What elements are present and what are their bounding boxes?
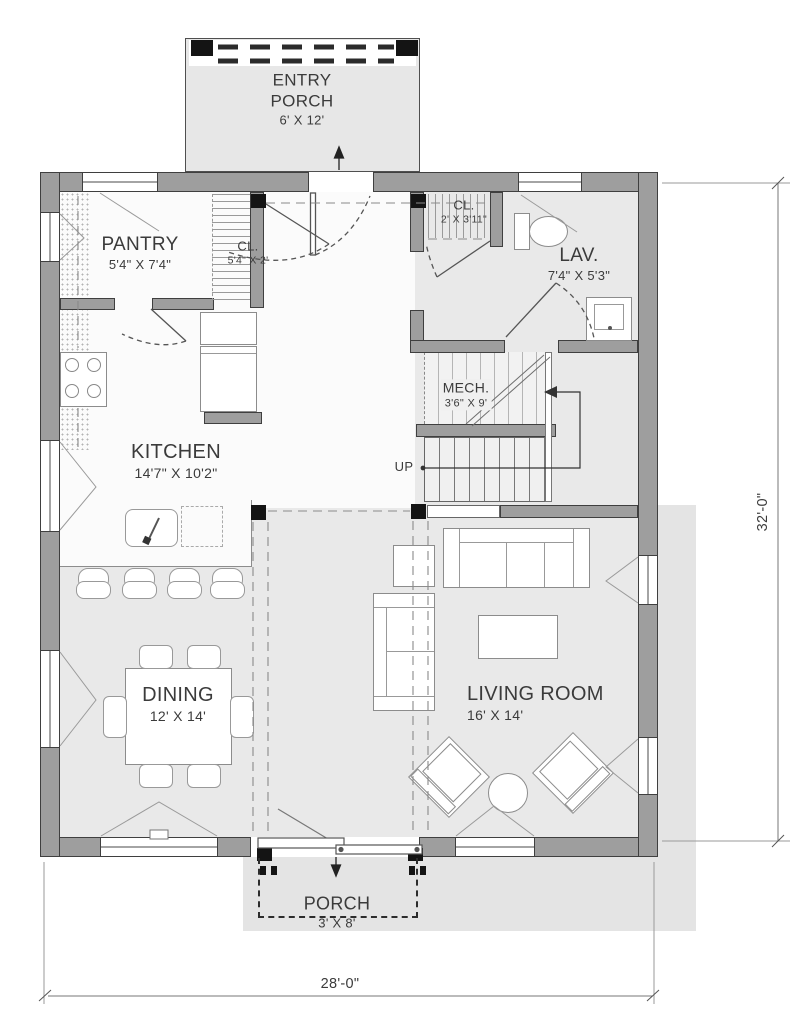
- window-dining-south: [100, 837, 218, 857]
- room-label-closet-pantry: CL. 5'4" X 2': [228, 238, 269, 267]
- room-label-porch: PORCH 3' X 8': [304, 893, 371, 932]
- column: [411, 194, 426, 208]
- room-label-kitchen: KITCHEN 14'7" X 10'2": [131, 440, 221, 483]
- wall-pantry-kitchen-a: [60, 298, 115, 310]
- dining-chair: [230, 696, 254, 738]
- room-label-mech: MECH. 3'6" X 9': [441, 379, 492, 410]
- window-living-south: [455, 837, 535, 857]
- room-label-living: LIVING ROOM 16' X 14': [467, 682, 604, 725]
- room-label-dining: DINING 12' X 14': [142, 683, 214, 726]
- column: [251, 194, 266, 208]
- dishwasher: [181, 506, 223, 547]
- wall-lav-south-a: [410, 340, 505, 353]
- burner: [87, 384, 101, 398]
- porch-post: [420, 866, 426, 875]
- stove: [60, 352, 107, 407]
- dimension-width-label: 28'-0": [321, 975, 360, 993]
- bar-stool: [210, 568, 244, 602]
- burner: [65, 384, 79, 398]
- kitchen-counter: [60, 192, 90, 450]
- floor-plan: ENTRY PORCH 6' X 12' PANTRY 5'4" X 7'4" …: [0, 0, 812, 1024]
- dining-chair: [139, 645, 173, 669]
- wall-living-north: [500, 505, 638, 518]
- dining-chair: [103, 696, 127, 738]
- room-label-lav: LAV. 7'4" X 5'3": [548, 244, 610, 284]
- stairs-up-label: UP: [395, 459, 414, 475]
- dimension-height-label: 32'-0": [754, 493, 772, 532]
- bar-stool: [122, 568, 156, 602]
- entry-door-opening: [308, 172, 374, 192]
- patio-door-opening: [250, 837, 420, 857]
- burner: [65, 358, 79, 372]
- room-label-entry-porch: ENTRY PORCH 6' X 12': [252, 70, 352, 129]
- wall-closet-lav: [490, 192, 503, 247]
- window-living-east-2: [638, 737, 658, 795]
- patio-band-right: [658, 505, 696, 857]
- bar-stool: [76, 568, 110, 602]
- window-living-east-1: [638, 555, 658, 605]
- bar-stool: [167, 568, 201, 602]
- stair-landing-wall: [416, 424, 556, 437]
- staircase: [424, 437, 548, 502]
- fridge-door-line: [201, 353, 256, 354]
- window-dining-west: [40, 650, 60, 748]
- entry-porch-roof-band: [189, 40, 416, 66]
- window-pantry-west: [40, 212, 60, 262]
- column: [251, 505, 266, 520]
- cased-opening-living: [427, 505, 500, 518]
- window-kitchen-west: [40, 440, 60, 532]
- wall-lav-south-b: [558, 340, 638, 353]
- stair-rail: [545, 352, 552, 502]
- burner: [87, 358, 101, 372]
- dining-chair: [187, 645, 221, 669]
- porch-column: [191, 40, 213, 56]
- porch-column: [396, 40, 418, 56]
- dining-chair: [139, 764, 173, 788]
- coffee-table: [478, 615, 558, 659]
- column: [411, 504, 426, 519]
- window-lav-north: [518, 172, 582, 192]
- dining-chair: [187, 764, 221, 788]
- refrigerator: [200, 346, 257, 412]
- lav-sink: [586, 297, 632, 341]
- upper-cabinet: [200, 312, 257, 345]
- window-pantry-north: [82, 172, 158, 192]
- wall-pantry-kitchen-b: [152, 298, 214, 310]
- kitchen-base-cabinet: [204, 412, 262, 424]
- room-label-closet-entry: CL. 2' X 3'11": [441, 197, 487, 226]
- island-sink: [125, 509, 178, 547]
- sofa: [443, 528, 590, 588]
- room-label-pantry: PANTRY 5'4" X 7'4": [101, 233, 178, 273]
- loveseat: [373, 593, 435, 711]
- toilet-tank: [514, 213, 530, 250]
- toilet-bowl: [529, 216, 568, 247]
- round-side-table: [488, 773, 528, 813]
- end-table: [393, 545, 435, 587]
